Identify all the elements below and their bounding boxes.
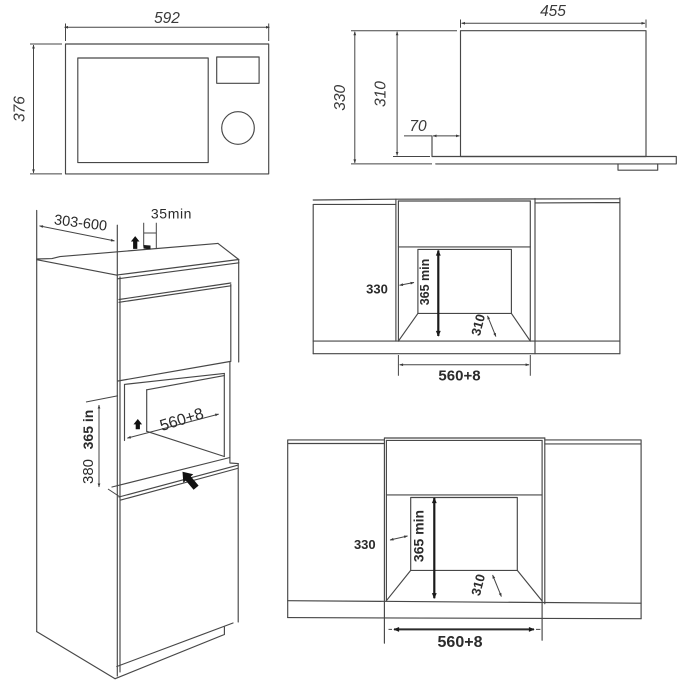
svg-text:330: 330 (354, 537, 376, 552)
svg-text:592: 592 (154, 10, 180, 27)
svg-text:35min: 35min (151, 206, 192, 222)
svg-text:380: 380 (80, 459, 97, 484)
svg-text:365 min: 365 min (418, 259, 432, 306)
svg-text:330: 330 (332, 84, 349, 110)
svg-text:330: 330 (366, 281, 388, 296)
svg-text:365 in: 365 in (80, 410, 96, 450)
svg-text:70: 70 (409, 118, 427, 135)
svg-text:376: 376 (12, 96, 29, 122)
svg-text:560+8: 560+8 (438, 634, 483, 651)
svg-text:455: 455 (540, 3, 566, 20)
svg-text:560+8: 560+8 (438, 367, 480, 384)
svg-text:310: 310 (373, 81, 390, 107)
svg-text:365 min: 365 min (411, 510, 427, 562)
